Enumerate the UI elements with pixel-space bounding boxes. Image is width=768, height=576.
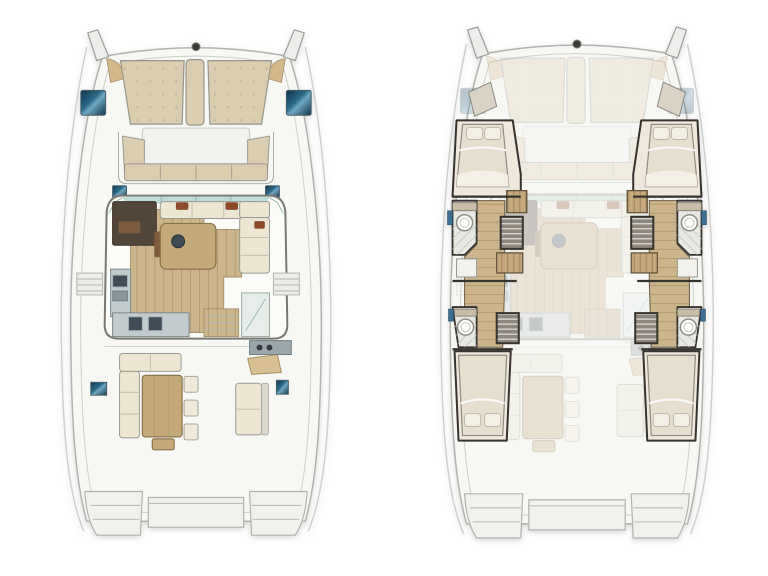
lower-deck-plan [433,24,721,546]
catamaran-layout-diagram [0,0,768,576]
main-deck-plan [57,24,335,546]
